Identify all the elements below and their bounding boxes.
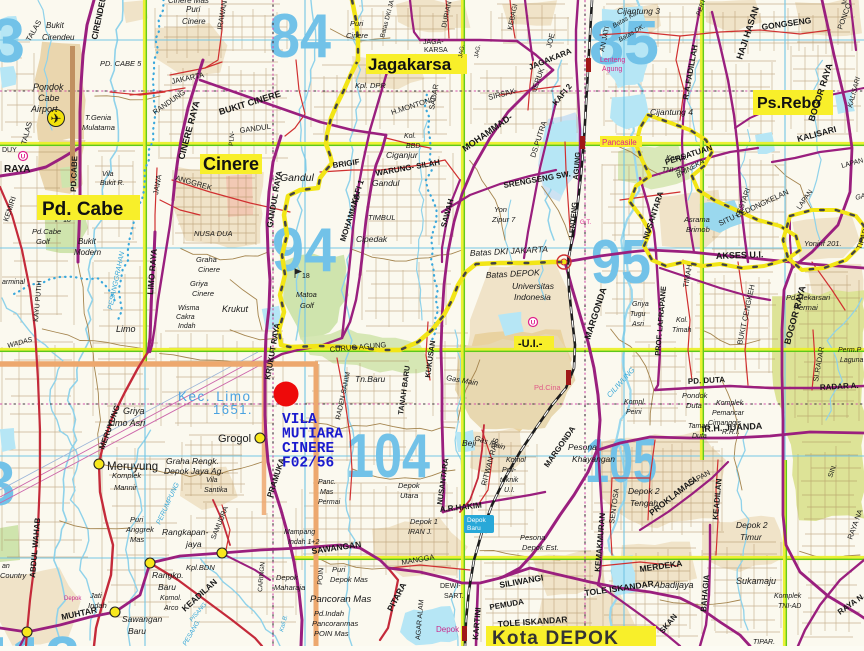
svg-text:Tn.Baru: Tn.Baru <box>355 374 386 384</box>
svg-text:Puri: Puri <box>350 19 364 28</box>
svg-text:Pd. Cabe: Pd. Cabe <box>42 199 123 220</box>
svg-text:an: an <box>2 563 10 570</box>
svg-text:Matoa: Matoa <box>296 290 317 299</box>
svg-text:DUY: DUY <box>2 147 17 154</box>
svg-text:-U.I.-: -U.I.- <box>518 338 543 350</box>
svg-text:Depok: Depok <box>436 625 460 634</box>
svg-text:arminal: arminal <box>2 279 25 286</box>
svg-text:Indonesia: Indonesia <box>514 292 551 302</box>
svg-text:TIPAR.: TIPAR. <box>753 639 775 646</box>
svg-text:Maharaja: Maharaja <box>274 583 305 592</box>
svg-text:Cinere: Cinere <box>203 154 259 174</box>
svg-text:Beji: Beji <box>462 438 477 448</box>
svg-text:Country: Country <box>0 571 28 580</box>
svg-text:Utara: Utara <box>400 491 418 500</box>
svg-text:Komplek: Komplek <box>716 400 744 407</box>
svg-text:Tengah: Tengah <box>630 498 658 508</box>
svg-text:Depok Mas: Depok Mas <box>330 575 368 584</box>
svg-text:Asri: Asri <box>631 321 645 328</box>
svg-text:Kol.: Kol. <box>404 133 416 140</box>
svg-text:Permai: Permai <box>318 499 341 506</box>
svg-text:Santika: Santika <box>204 487 227 494</box>
svg-text:Pd.Indah: Pd.Indah <box>314 609 344 618</box>
svg-text:AKSES U.I.: AKSES U.I. <box>716 249 764 261</box>
svg-text:U.I.: U.I. <box>504 487 515 494</box>
svg-text:Pancoranmas: Pancoranmas <box>312 619 359 628</box>
svg-text:Laguna: Laguna <box>840 357 863 364</box>
svg-text:Wisma: Wisma <box>178 305 199 312</box>
svg-text:Universitas: Universitas <box>512 281 555 291</box>
svg-text:Rangkp.: Rangkp. <box>152 570 184 580</box>
svg-text:Cinere Mas: Cinere Mas <box>168 0 209 5</box>
svg-text:Vila: Vila <box>206 477 218 484</box>
svg-text:POIN Mas: POIN Mas <box>314 629 349 638</box>
svg-text:Griya: Griya <box>632 301 649 308</box>
svg-text:Duta: Duta <box>692 433 707 440</box>
svg-text:KARSA: KARSA <box>424 47 448 54</box>
svg-text:Pancasile: Pancasile <box>602 138 637 147</box>
svg-text:Baru: Baru <box>467 525 481 532</box>
svg-text:Peini: Peini <box>626 409 642 416</box>
svg-text:Lenteng: Lenteng <box>600 57 625 64</box>
svg-text:JAGA-: JAGA- <box>423 39 444 46</box>
svg-text:Puri: Puri <box>186 5 200 14</box>
svg-text:Bukit R.: Bukit R. <box>100 180 125 187</box>
svg-text:Agung: Agung <box>602 66 622 73</box>
svg-text:PD.CABE: PD.CABE <box>69 155 79 192</box>
svg-text:POIN: POIN <box>317 568 325 586</box>
svg-text:Arco: Arco <box>163 605 179 612</box>
svg-text:Komol.: Komol. <box>160 595 182 602</box>
svg-text:Yoninf 201.: Yoninf 201. <box>804 239 842 248</box>
svg-text:Pd.Cabe: Pd.Cabe <box>32 227 61 236</box>
svg-text:Depok: Depok <box>467 517 487 524</box>
svg-text:Depok 1: Depok 1 <box>410 517 438 526</box>
svg-text:F02/56: F02/56 <box>282 456 334 472</box>
svg-text:Airport: Airport <box>30 104 58 114</box>
svg-text:Sawangan: Sawangan <box>122 614 162 624</box>
svg-text:Cirendeu: Cirendeu <box>42 33 75 42</box>
svg-text:Pd.Mekarsari: Pd.Mekarsari <box>786 293 831 302</box>
svg-text:Cinere: Cinere <box>198 265 220 274</box>
svg-text:Cipedak: Cipedak <box>356 234 388 244</box>
svg-text:Gandul: Gandul <box>372 178 401 188</box>
svg-text:Pemancar: Pemancar <box>712 410 745 417</box>
svg-text:Griya: Griya <box>123 406 145 416</box>
svg-text:1651.: 1651. <box>213 402 253 417</box>
svg-text:Griya: Griya <box>190 279 208 288</box>
svg-text:Pesona: Pesona <box>520 533 545 542</box>
svg-text:BBD: BBD <box>406 143 420 150</box>
svg-text:R.R.I.: R.R.I. <box>722 429 740 436</box>
svg-text:Graha Rengk.: Graha Rengk. <box>166 456 219 466</box>
svg-text:Komplek: Komplek <box>112 471 142 480</box>
svg-text:Cinere: Cinere <box>346 31 368 40</box>
svg-text:Kompl.: Kompl. <box>666 155 688 162</box>
svg-text:Pondok: Pondok <box>33 82 64 92</box>
svg-text:Cabe: Cabe <box>38 93 60 103</box>
svg-text:Cijantung 4: Cijantung 4 <box>650 107 693 117</box>
svg-text:Indah: Indah <box>88 601 107 610</box>
svg-text:Puri: Puri <box>332 565 346 574</box>
svg-text:Cakra: Cakra <box>176 314 195 321</box>
svg-text:Zipur 7: Zipur 7 <box>491 215 516 224</box>
svg-text:Baru: Baru <box>158 582 176 592</box>
svg-text:Puri: Puri <box>130 515 144 524</box>
svg-text:Golf: Golf <box>36 237 51 246</box>
svg-text:Mulatama: Mulatama <box>82 123 115 132</box>
svg-text:TIMBUL: TIMBUL <box>368 213 396 222</box>
svg-text:Pesona: Pesona <box>568 442 597 452</box>
svg-text:Grogol: Grogol <box>218 433 251 445</box>
svg-text:Golf: Golf <box>300 301 315 310</box>
svg-text:Asrama: Asrama <box>683 215 710 224</box>
svg-text:Taman: Taman <box>688 423 709 430</box>
svg-text:G.T.: G.T. <box>580 220 591 226</box>
svg-text:Cinere: Cinere <box>192 289 214 298</box>
svg-text:Mannir: Mannir <box>114 483 137 492</box>
svg-text:Depok Est.: Depok Est. <box>522 543 559 552</box>
svg-text:T.Genia: T.Genia <box>85 113 111 122</box>
svg-text:Duta: Duta <box>686 401 702 410</box>
svg-text:Krukut: Krukut <box>222 304 249 314</box>
svg-text:Timah: Timah <box>672 327 691 334</box>
svg-text:U: U <box>21 154 26 161</box>
svg-text:Mampang: Mampang <box>284 529 315 536</box>
svg-text:Abadijaya: Abadijaya <box>653 580 694 590</box>
svg-text:103: 103 <box>0 450 15 519</box>
svg-text:DEWI-: DEWI- <box>440 583 461 590</box>
svg-text:84: 84 <box>269 2 331 71</box>
svg-text:Rangkapan-: Rangkapan- <box>162 527 208 537</box>
svg-text:NUSA DUA: NUSA DUA <box>194 229 232 238</box>
svg-text:Timur: Timur <box>740 532 763 542</box>
svg-text:teknik: teknik <box>500 477 519 484</box>
svg-text:Vila: Vila <box>102 171 114 178</box>
svg-text:Modern: Modern <box>74 248 102 257</box>
svg-text:IRAN J.: IRAN J. <box>408 529 432 536</box>
svg-text:Pondok: Pondok <box>682 391 709 400</box>
svg-text:Depok 2: Depok 2 <box>736 520 768 530</box>
svg-text:Jagakarsa: Jagakarsa <box>368 55 452 74</box>
svg-text:Kompl.: Kompl. <box>624 399 646 406</box>
svg-text:Cinere: Cinere <box>182 17 206 26</box>
svg-text:Permai: Permai <box>794 303 818 312</box>
svg-text:Depok: Depok <box>398 481 421 490</box>
svg-text:Indah 1+2: Indah 1+2 <box>288 539 319 546</box>
svg-text:RAYA: RAYA <box>4 164 31 175</box>
svg-text:Kol.: Kol. <box>676 317 688 324</box>
svg-text:Cimanggis: Cimanggis <box>708 420 742 427</box>
svg-text:Kpl. DPR: Kpl. DPR <box>355 81 386 90</box>
svg-text:U: U <box>531 320 536 327</box>
svg-text:PLN-: PLN- <box>228 131 236 146</box>
svg-text:Depok 2: Depok 2 <box>628 486 660 496</box>
svg-text:Depok: Depok <box>276 573 299 582</box>
svg-text:Mas: Mas <box>130 535 144 544</box>
svg-text:Depok: Depok <box>64 596 82 602</box>
svg-text:18: 18 <box>302 273 310 280</box>
svg-text:Baru: Baru <box>128 626 146 636</box>
svg-text:Brimob: Brimob <box>686 225 710 234</box>
svg-text:Mas: Mas <box>320 489 334 496</box>
svg-text:Bukit: Bukit <box>46 21 65 30</box>
svg-text:Kpl.BDN: Kpl.BDN <box>186 563 215 572</box>
svg-text:83: 83 <box>0 7 25 76</box>
svg-text:Khayangan: Khayangan <box>572 454 615 464</box>
svg-text:Komol: Komol <box>506 457 526 464</box>
svg-text:Depok Jaya Ag.: Depok Jaya Ag. <box>164 466 224 476</box>
svg-text:TNI-AD: TNI-AD <box>778 603 801 610</box>
svg-text:Gandul: Gandul <box>280 172 315 184</box>
svg-text:Pd.Cina: Pd.Cina <box>534 383 562 392</box>
svg-text:PD. CABE 5: PD. CABE 5 <box>100 59 142 68</box>
svg-text:Poli-: Poli- <box>502 467 517 474</box>
svg-text:Limo: Limo <box>116 324 136 334</box>
svg-text:Pancoran Mas: Pancoran Mas <box>310 594 372 605</box>
svg-text:Kota DEPOK: Kota DEPOK <box>492 628 619 646</box>
svg-text:Komplek: Komplek <box>774 593 802 600</box>
svg-text:Graha: Graha <box>196 255 217 264</box>
svg-text:Tugu: Tugu <box>630 311 646 318</box>
svg-text:Jati: Jati <box>89 591 102 600</box>
svg-text:Perm.P: Perm.P <box>838 347 862 354</box>
svg-text:Anggrek: Anggrek <box>125 525 155 534</box>
svg-text:Ciganjur: Ciganjur <box>386 150 419 160</box>
svg-text:Limo Asri: Limo Asri <box>108 418 146 428</box>
svg-text:Bukit: Bukit <box>78 237 97 246</box>
svg-text:Panc.: Panc. <box>318 479 336 486</box>
svg-text:SART.: SART. <box>444 593 464 600</box>
svg-text:Indah: Indah <box>178 323 196 330</box>
svg-text:Yon: Yon <box>494 205 507 214</box>
svg-text:jaya: jaya <box>185 539 202 549</box>
svg-text:Sukamaju: Sukamaju <box>736 576 776 586</box>
